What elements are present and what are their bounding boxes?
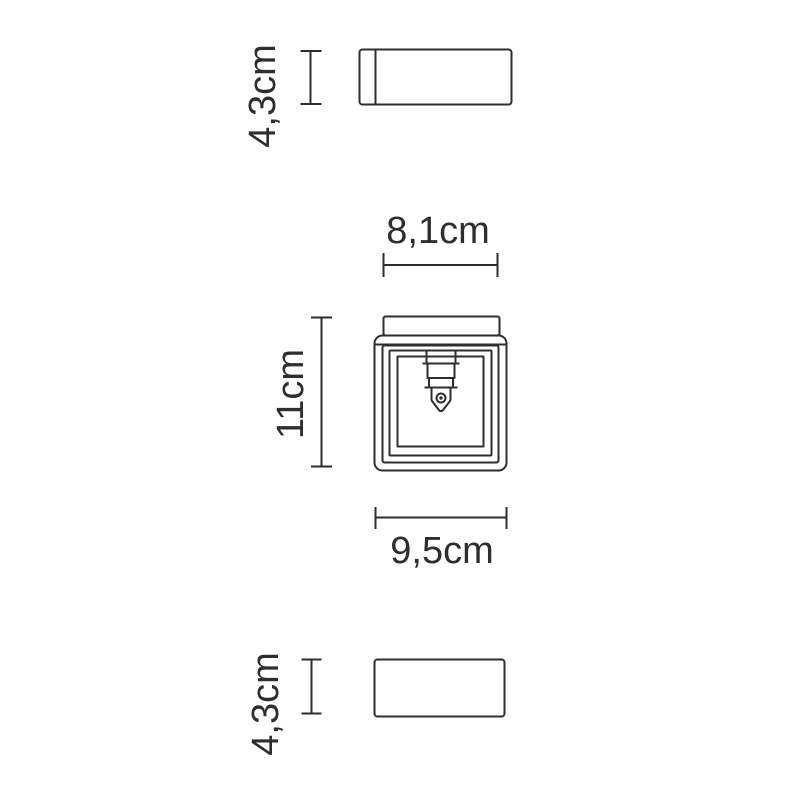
dim-label-front-top-width: 8,1cm: [386, 212, 489, 250]
front-view-ceiling-canopy: [384, 317, 500, 336]
dim-line-top-height: [302, 51, 321, 104]
dim-line-front-top-width: [384, 254, 498, 276]
side-view-bottom-body: [375, 660, 505, 717]
dim-label-top-view-height: 4,3cm: [244, 44, 282, 147]
bulb-center-dot: [439, 396, 442, 399]
dim-label-front-bottom-width: 9,5cm: [390, 532, 493, 570]
lamp-dimension-diagram-page: 4,3cm 8,1cm 11cm 9,5cm 4,3cm: [0, 0, 800, 800]
side-view-top-body: [360, 50, 512, 105]
dim-label-bottom-view-height: 4,3cm: [247, 652, 285, 755]
socket-mid-band: [428, 364, 455, 379]
dim-line-front-bottom-width: [376, 508, 507, 528]
dim-line-bottom-height: [303, 660, 321, 714]
socket-neck: [429, 378, 453, 388]
lamp-dimension-drawing: [0, 0, 800, 800]
dim-label-front-height: 11cm: [272, 349, 310, 439]
dim-line-front-height: [312, 318, 331, 467]
